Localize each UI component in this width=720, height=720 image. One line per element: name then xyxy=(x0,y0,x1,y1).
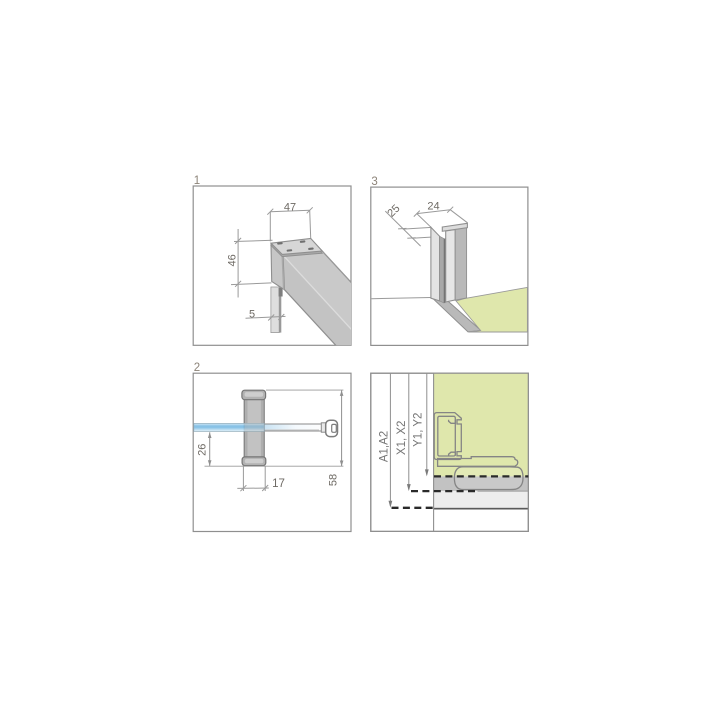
svg-text:2: 2 xyxy=(194,362,200,374)
svg-text:3: 3 xyxy=(371,176,377,188)
svg-text:A1,A2: A1,A2 xyxy=(379,431,391,462)
svg-text:5: 5 xyxy=(249,309,255,321)
svg-text:Y1, Y2: Y1, Y2 xyxy=(412,413,424,447)
svg-text:26: 26 xyxy=(196,444,208,456)
svg-text:47: 47 xyxy=(284,201,296,213)
svg-text:24: 24 xyxy=(427,201,439,213)
svg-text:58: 58 xyxy=(327,474,339,486)
svg-text:1: 1 xyxy=(194,175,200,187)
svg-text:X1, X2: X1, X2 xyxy=(396,421,408,456)
svg-text:46: 46 xyxy=(227,254,239,266)
svg-text:17: 17 xyxy=(272,478,285,490)
